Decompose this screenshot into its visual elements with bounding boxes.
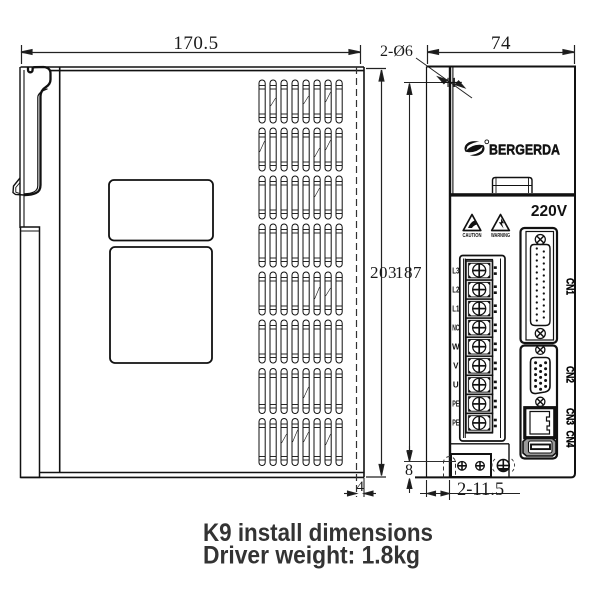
svg-text:V: V [453, 362, 459, 371]
svg-text:CN3: CN3 [564, 408, 576, 425]
svg-text:CN1: CN1 [564, 278, 576, 295]
svg-text:220V: 220V [531, 203, 568, 220]
svg-text:203: 203 [370, 263, 397, 282]
svg-text:CN2: CN2 [564, 366, 576, 383]
svg-text:2-11.5: 2-11.5 [457, 480, 504, 500]
svg-text:PE: PE [452, 400, 460, 409]
svg-text:Driver weight: 1.8kg: Driver weight: 1.8kg [203, 542, 420, 570]
svg-text:CAUTION: CAUTION [463, 233, 482, 239]
svg-text:187: 187 [395, 263, 422, 282]
svg-text:W: W [452, 343, 460, 352]
svg-text:NC: NC [452, 324, 459, 333]
svg-text:L2: L2 [452, 285, 460, 294]
svg-text:L3: L3 [452, 266, 460, 275]
svg-text:PE: PE [452, 419, 460, 428]
svg-text:8: 8 [405, 462, 413, 479]
svg-text:BERGERDA: BERGERDA [489, 143, 560, 159]
svg-text:4: 4 [357, 479, 365, 495]
svg-text:L1: L1 [452, 304, 460, 313]
svg-text:WARNING: WARNING [491, 233, 510, 239]
svg-text:2-Ø6: 2-Ø6 [380, 43, 413, 60]
svg-text:74: 74 [491, 33, 511, 54]
svg-text:CN4: CN4 [564, 431, 576, 448]
svg-text:U: U [453, 381, 459, 390]
svg-text:170.5: 170.5 [173, 33, 218, 54]
